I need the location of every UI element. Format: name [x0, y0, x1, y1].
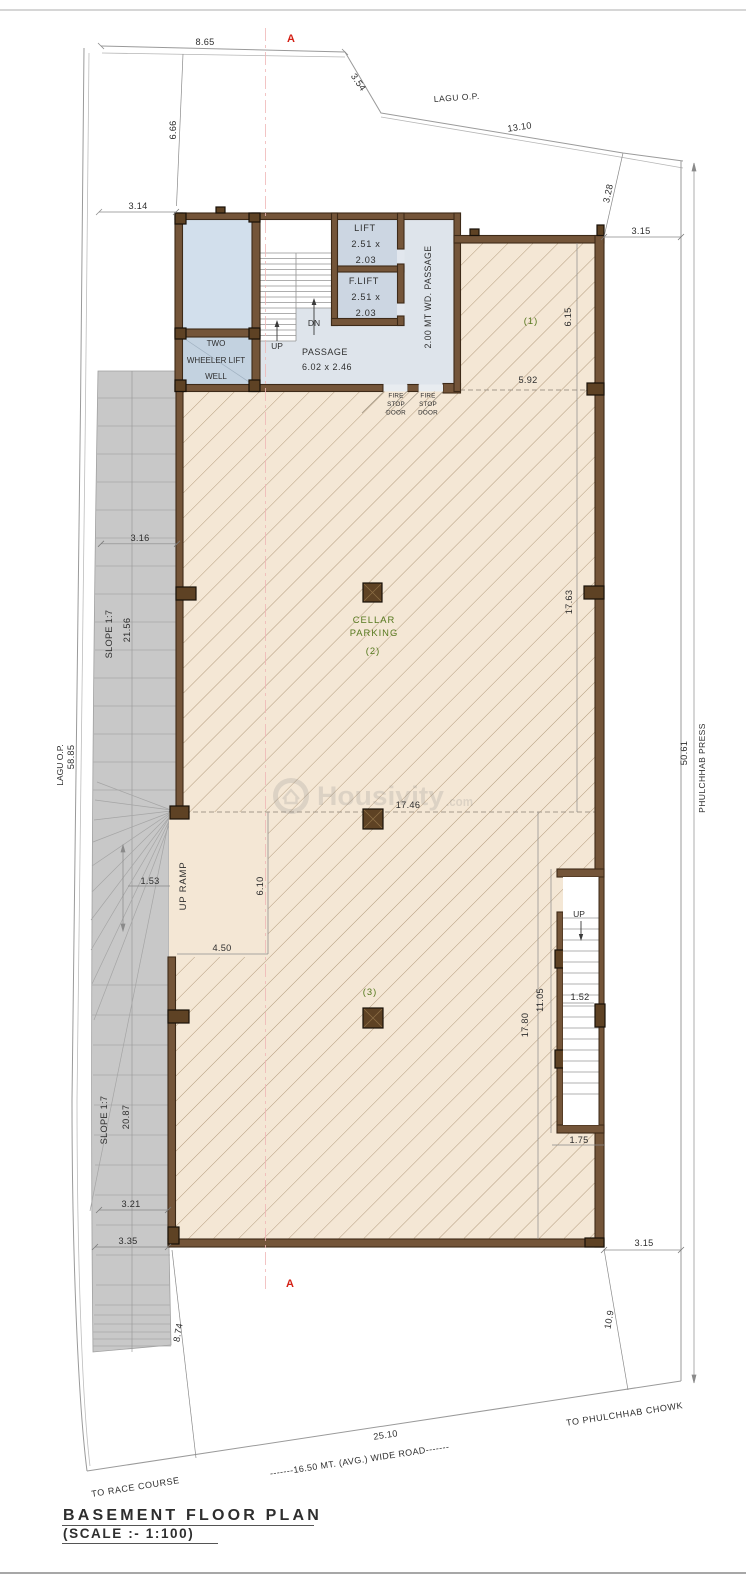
svg-text:FIRE: FIRE — [420, 393, 435, 400]
svg-text:LIFT: LIFT — [354, 223, 376, 233]
svg-text:UP: UP — [573, 909, 585, 919]
svg-text:BASEMENT FLOOR PLAN: BASEMENT FLOOR PLAN — [63, 1507, 322, 1524]
svg-text:(1): (1) — [524, 315, 538, 326]
svg-text:(2): (2) — [366, 645, 380, 656]
svg-text:SLOPE 1:7: SLOPE 1:7 — [104, 610, 114, 659]
svg-text:3.14: 3.14 — [128, 201, 147, 211]
svg-text:1.53: 1.53 — [140, 876, 159, 886]
svg-text:17.63: 17.63 — [564, 590, 574, 615]
svg-text:STOP: STOP — [419, 401, 437, 408]
svg-text:11.05: 11.05 — [535, 988, 545, 1012]
svg-text:TWO: TWO — [207, 339, 226, 348]
svg-text:STOP: STOP — [387, 401, 405, 408]
svg-text:6.02 x 2.46: 6.02 x 2.46 — [302, 362, 352, 372]
svg-text:21.56: 21.56 — [122, 618, 132, 643]
svg-text:LAGU O.P.: LAGU O.P. — [55, 744, 65, 785]
svg-text:17.80: 17.80 — [520, 1013, 530, 1038]
svg-text:3.16: 3.16 — [130, 533, 149, 543]
svg-text:3.21: 3.21 — [121, 1199, 140, 1209]
svg-text:(3): (3) — [363, 986, 377, 997]
svg-text:WELL: WELL — [205, 372, 227, 381]
svg-text:2.51 x: 2.51 x — [351, 239, 380, 249]
svg-text:.com: .com — [446, 794, 473, 809]
svg-text:50.61: 50.61 — [679, 741, 689, 766]
svg-text:3.35: 3.35 — [118, 1236, 137, 1246]
svg-text:PHULCHHAB PRESS: PHULCHHAB PRESS — [697, 723, 707, 813]
svg-text:CELLAR: CELLAR — [353, 614, 395, 625]
svg-text:2.03: 2.03 — [356, 255, 377, 265]
svg-text:2.51 x: 2.51 x — [351, 292, 380, 302]
svg-text:58.85: 58.85 — [66, 745, 76, 770]
svg-text:DOOR: DOOR — [418, 410, 438, 417]
svg-text:6.10: 6.10 — [255, 876, 265, 895]
svg-text:1.75: 1.75 — [569, 1135, 588, 1145]
svg-text:5.92: 5.92 — [518, 375, 537, 385]
svg-text:FIRE: FIRE — [388, 393, 403, 400]
svg-text:4.50: 4.50 — [212, 943, 231, 953]
svg-text:DN: DN — [308, 318, 320, 328]
svg-text:17.46: 17.46 — [396, 800, 421, 810]
svg-text:6.15: 6.15 — [563, 307, 573, 326]
svg-text:Housivity: Housivity — [317, 781, 444, 811]
svg-text:3.15: 3.15 — [631, 226, 650, 236]
svg-text:UP RAMP: UP RAMP — [178, 862, 189, 911]
svg-text:3.15: 3.15 — [634, 1238, 653, 1248]
svg-text:8.65: 8.65 — [195, 37, 214, 47]
svg-text:SLOPE 1:7: SLOPE 1:7 — [99, 1096, 109, 1145]
svg-text:2.03: 2.03 — [356, 308, 377, 318]
svg-text:A: A — [287, 33, 295, 45]
svg-text:UP: UP — [271, 341, 283, 351]
svg-text:20.87: 20.87 — [121, 1105, 131, 1130]
svg-text:A: A — [286, 1278, 294, 1290]
svg-text:DOOR: DOOR — [386, 410, 406, 417]
svg-text:6.66: 6.66 — [168, 120, 178, 139]
svg-text:PASSAGE: PASSAGE — [302, 347, 348, 357]
svg-text:PARKING: PARKING — [350, 627, 399, 638]
svg-text:2.00 MT WD. PASSAGE: 2.00 MT WD. PASSAGE — [423, 245, 433, 348]
svg-text:(SCALE :- 1:100): (SCALE :- 1:100) — [63, 1526, 194, 1541]
svg-text:1.52: 1.52 — [570, 992, 589, 1002]
svg-text:WHEELER LIFT: WHEELER LIFT — [187, 356, 245, 365]
svg-text:F.LIFT: F.LIFT — [349, 276, 379, 286]
